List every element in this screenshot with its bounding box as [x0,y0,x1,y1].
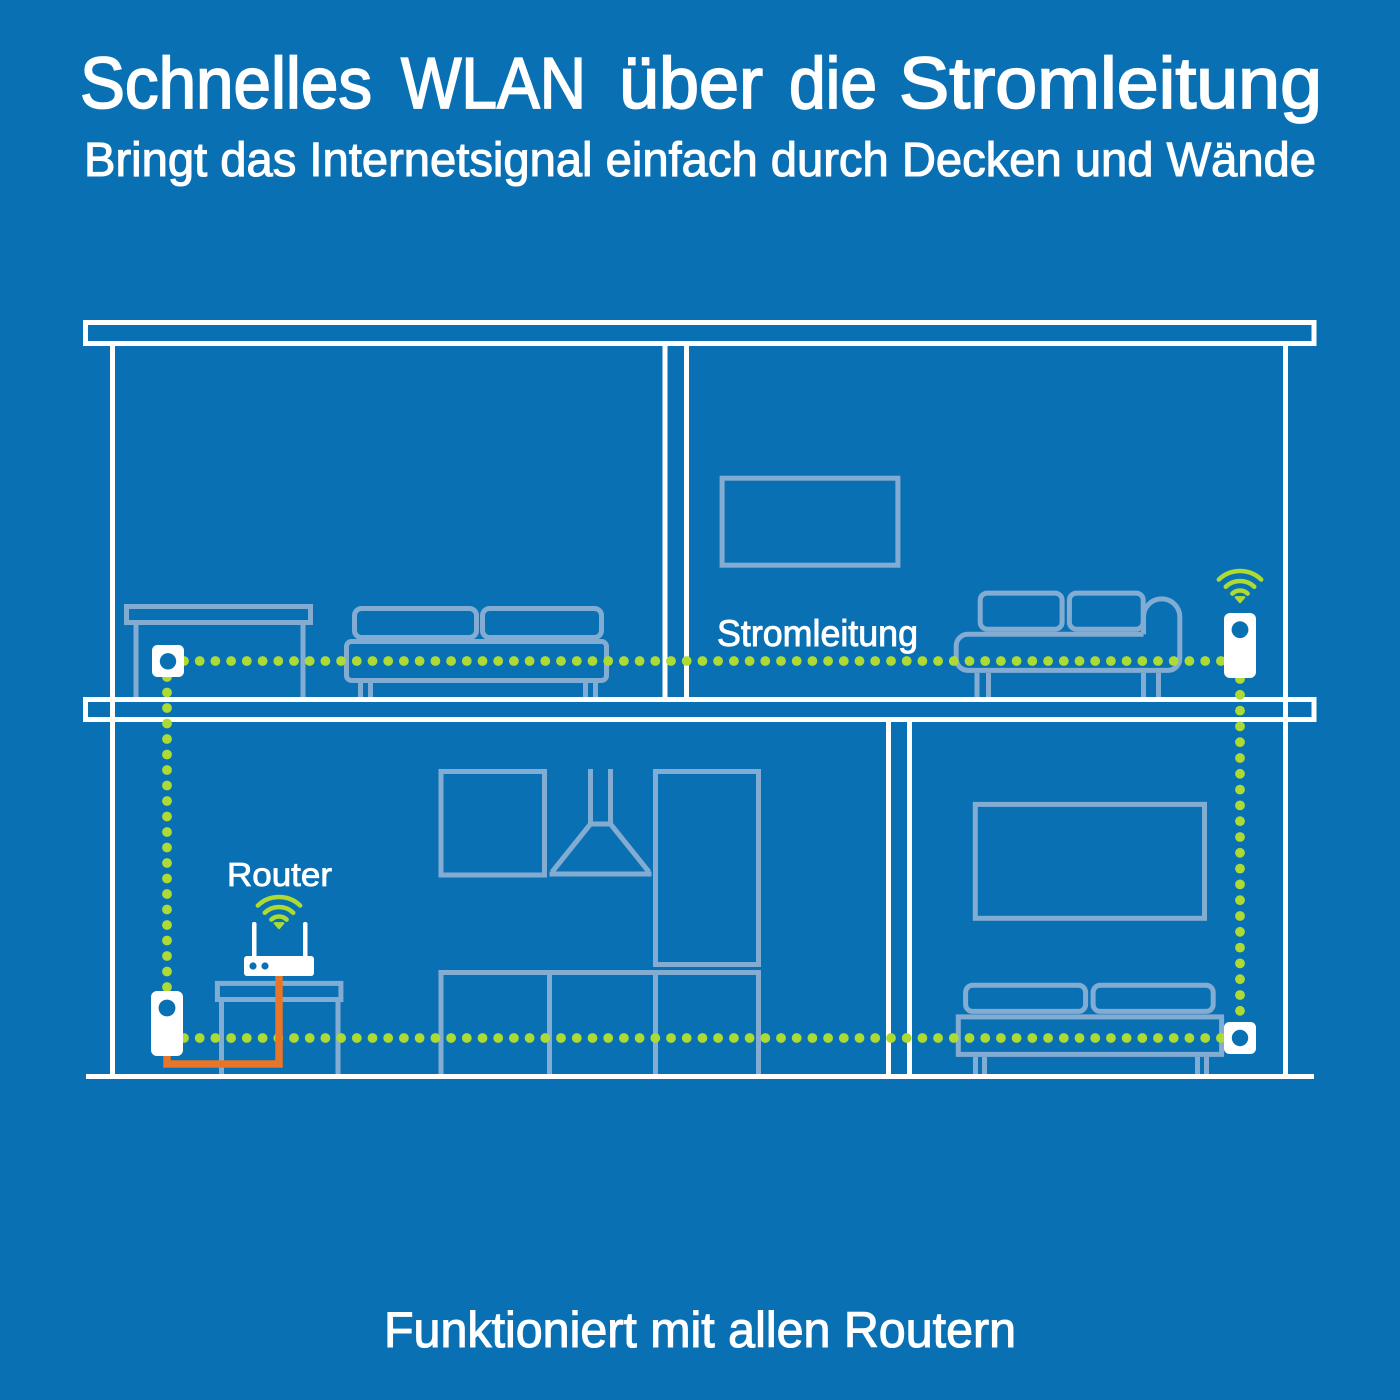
svg-text:Bringt das Internetsignal einf: Bringt das Internetsignal einfach durch … [84,134,1316,187]
svg-text:Stromleitung: Stromleitung [717,613,918,654]
svg-text:Stromleitung: Stromleitung [899,44,1322,124]
svg-text:Schnelles: Schnelles [80,44,372,124]
svg-text:Router: Router [227,856,332,893]
svg-text:die: die [789,44,877,124]
svg-text:Funktioniert mit allen Routern: Funktioniert mit allen Routern [384,1302,1016,1358]
svg-text:WLAN: WLAN [401,44,586,124]
svg-text:über: über [619,44,763,124]
